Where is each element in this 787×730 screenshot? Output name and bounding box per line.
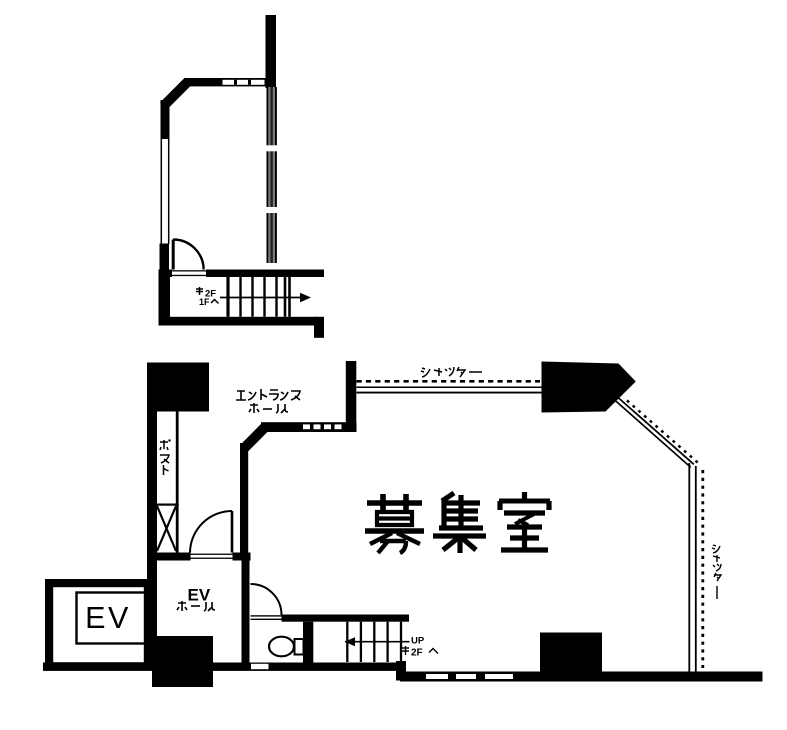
svg-text:1F: 1F (199, 297, 210, 307)
svg-text:EV: EV (85, 601, 131, 635)
svg-text:2F: 2F (411, 648, 423, 659)
svg-text:EV: EV (188, 586, 211, 605)
svg-text:UP: UP (411, 636, 425, 647)
